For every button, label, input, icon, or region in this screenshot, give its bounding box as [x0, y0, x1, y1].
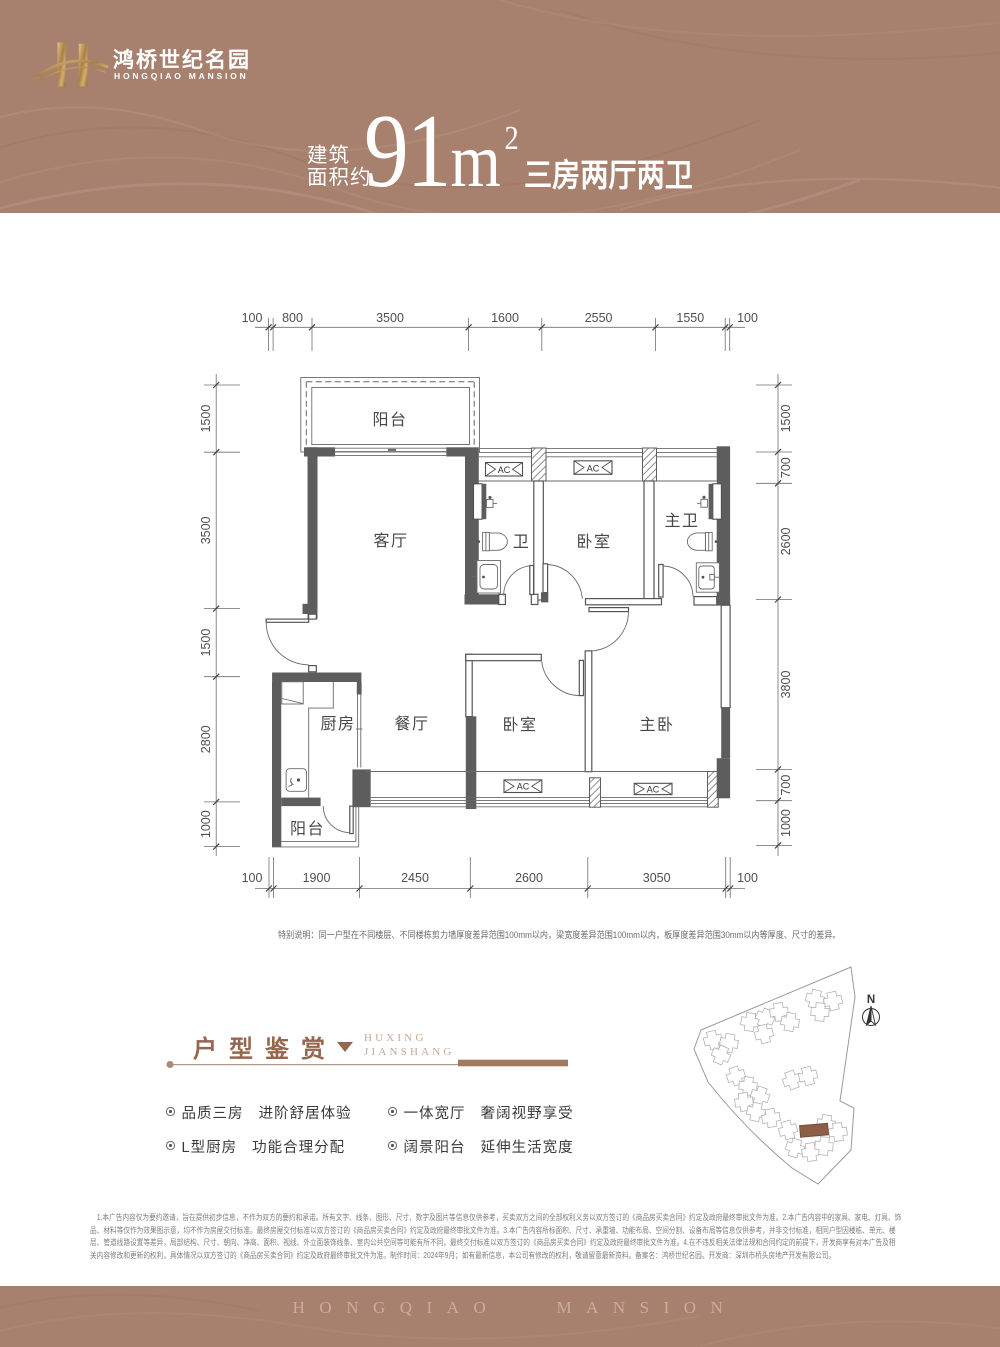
- svg-text:3050: 3050: [643, 871, 671, 885]
- svg-text:3800: 3800: [779, 671, 793, 699]
- svg-text:阳台: 阳台: [290, 820, 325, 838]
- svg-text:1000: 1000: [779, 809, 793, 837]
- svg-text:2600: 2600: [515, 871, 543, 885]
- svg-text:厨房: 厨房: [320, 715, 355, 733]
- svg-text:1500: 1500: [779, 405, 793, 433]
- svg-text:2800: 2800: [199, 725, 213, 753]
- svg-text:100: 100: [737, 871, 758, 885]
- svg-text:客厅: 客厅: [373, 532, 408, 550]
- svg-text:1500: 1500: [199, 405, 213, 433]
- svg-text:N: N: [867, 994, 875, 1006]
- svg-text:1500: 1500: [199, 629, 213, 657]
- svg-text:2600: 2600: [779, 527, 793, 555]
- svg-text:AC: AC: [647, 784, 660, 794]
- svg-text:2550: 2550: [585, 311, 613, 325]
- svg-text:阳台: 阳台: [372, 411, 407, 429]
- svg-text:1900: 1900: [303, 871, 331, 885]
- svg-text:1600: 1600: [491, 311, 519, 325]
- svg-text:100: 100: [242, 871, 263, 885]
- svg-text:餐厅: 餐厅: [394, 715, 429, 733]
- svg-text:卧室: 卧室: [576, 533, 611, 551]
- svg-text:800: 800: [282, 311, 303, 325]
- svg-text:700: 700: [779, 457, 793, 478]
- svg-text:卫: 卫: [513, 534, 531, 551]
- svg-text:100: 100: [737, 311, 758, 325]
- svg-text:1000: 1000: [199, 810, 213, 838]
- svg-text:主卫: 主卫: [664, 512, 699, 530]
- svg-text:1550: 1550: [676, 311, 704, 325]
- svg-text:主卧: 主卧: [639, 716, 674, 734]
- svg-text:卧室: 卧室: [502, 716, 537, 734]
- svg-text:3500: 3500: [376, 311, 404, 325]
- svg-text:100: 100: [242, 311, 263, 325]
- svg-text:3500: 3500: [199, 516, 213, 544]
- svg-text:AC: AC: [498, 465, 511, 475]
- svg-text:AC: AC: [517, 782, 530, 792]
- svg-text:2450: 2450: [401, 871, 429, 885]
- svg-text:700: 700: [779, 775, 793, 796]
- svg-text:AC: AC: [587, 463, 600, 473]
